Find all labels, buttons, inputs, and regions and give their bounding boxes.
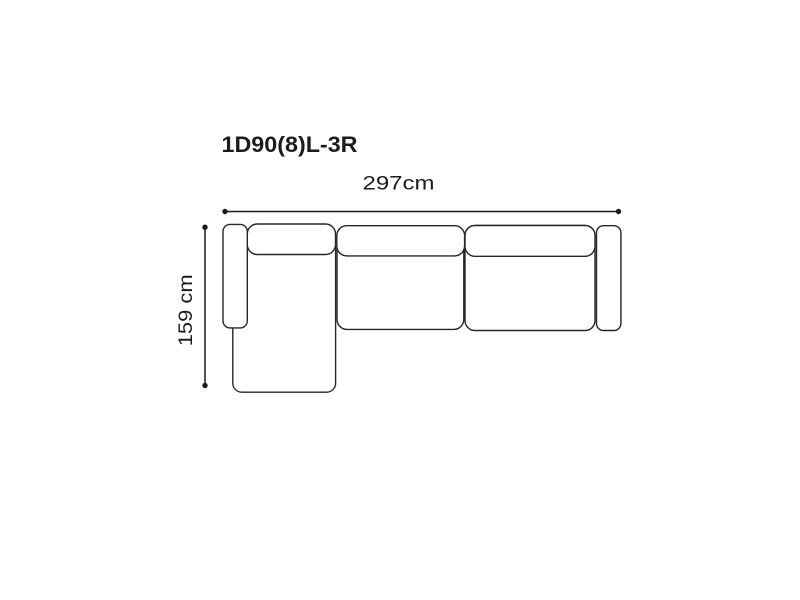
svg-text:1D90(8)L-3R: 1D90(8)L-3R [222, 132, 358, 157]
svg-text:159 cm: 159 cm [175, 274, 197, 346]
svg-text:297cm: 297cm [363, 173, 435, 195]
